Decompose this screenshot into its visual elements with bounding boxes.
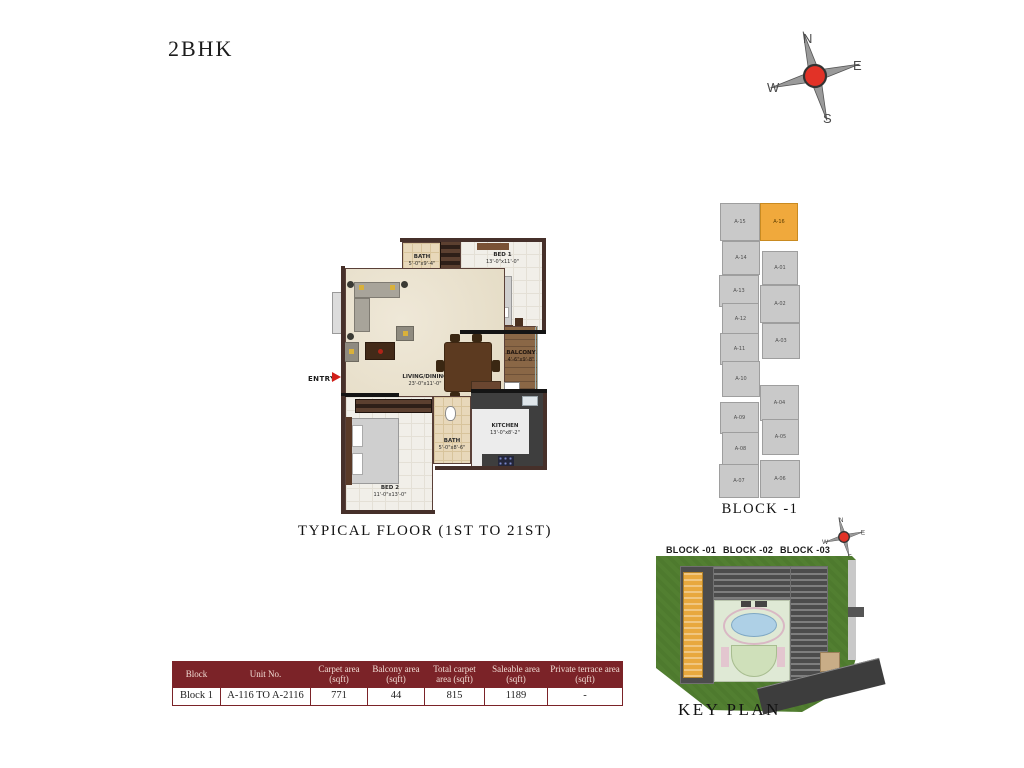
table-row: Block 1 A-116 TO A-2116 771 44 815 1189 … (173, 687, 623, 705)
unit-a06: A-06 (760, 460, 800, 498)
cell-total-carpet-area: 815 (425, 687, 485, 705)
dining-chair (436, 360, 444, 372)
page-title: 2BHK (168, 36, 233, 62)
col-block: Block (173, 662, 221, 688)
cell-unit-no: A-116 TO A-2116 (221, 687, 311, 705)
table-header-row: Block Unit No. Carpet area (sqft) Balcon… (173, 662, 623, 688)
col-carpet-area: Carpet area (sqft) (311, 662, 368, 688)
keyplan-block01-label: BLOCK -01 (666, 546, 716, 555)
courtyard-structure (755, 601, 767, 607)
dining-chair (492, 360, 500, 372)
planter (347, 281, 354, 288)
cell-private-terrace-area: - (548, 687, 623, 705)
unit-a14: A-14 (722, 241, 760, 275)
col-total-carpet-area: Total carpet area (sqft) (425, 662, 485, 688)
dining-chair (450, 334, 460, 342)
area-table: Block Unit No. Carpet area (sqft) Balcon… (172, 661, 623, 706)
accent-chair (344, 342, 359, 362)
balcony-label: BALCONY 4'-6"x9'-8" (504, 350, 538, 363)
site-annex (848, 607, 864, 617)
unit-a07: A-07 (719, 464, 759, 498)
brochure-page: 2BHK N E W S 2 NOS ︿︿︿ BATH 5'-0"x9'-4" (0, 0, 1024, 768)
wall (543, 393, 547, 470)
cell-block: Block 1 (173, 687, 221, 705)
nightstand-right (515, 318, 523, 326)
block1-tower: A-15 A-14 A-13 A-12 A-11 A-10 A-09 A-08 … (714, 198, 806, 502)
col-saleable-area: Saleable area (sqft) (485, 662, 548, 688)
wall (341, 396, 345, 514)
sofa-chaise (354, 298, 370, 332)
wall (341, 266, 345, 396)
bed1-console (477, 243, 509, 250)
compass-n: N (803, 31, 812, 46)
keyplan-caption: KEY PLAN (678, 700, 781, 720)
unit-a09: A-09 (720, 402, 759, 434)
unit-a05: A-05 (762, 419, 799, 455)
svg-text:E: E (861, 529, 866, 536)
bed2 (349, 418, 399, 484)
wall (341, 393, 399, 397)
cell-balcony-area: 44 (368, 687, 425, 705)
bed1-label: BED 1 13'-0"x11'-0" (460, 252, 545, 265)
unit-a12: A-12 (722, 303, 759, 335)
dining-chair (472, 334, 482, 342)
compass-w: W (767, 80, 780, 95)
planter (401, 281, 408, 288)
keyplan-block02-label: BLOCK -02 (723, 546, 773, 555)
unit-a15: A-15 (720, 203, 760, 241)
unit-a01: A-01 (762, 251, 798, 285)
cell-carpet-area: 771 (311, 687, 368, 705)
compass-e: E (853, 58, 862, 73)
key-plan: N E W S BLOCK -01 BLOCK -02 BLOCK -03 (652, 540, 874, 740)
sofa (354, 282, 400, 298)
entry-arrow-icon (332, 372, 341, 382)
accent-chair (396, 326, 414, 341)
bed2-label: BED 2 11'-0"x13'-0" (355, 485, 425, 498)
compass-icon: N E W S (765, 26, 865, 126)
floor-caption: TYPICAL FLOOR (1ST TO 21ST) (290, 523, 560, 540)
toilet-icon (445, 406, 456, 421)
garden-path (721, 647, 729, 667)
wall (341, 510, 435, 514)
bath2-label: BATH 5'-0"x8'-6" (433, 438, 471, 451)
col-private-terrace-area: Private terrace area (sqft) (548, 662, 623, 688)
compass-s: S (823, 111, 832, 126)
kitchen-label: KITCHEN 13'-0"x8'-2" (476, 423, 534, 436)
compass-rose: N E W S (765, 26, 865, 126)
wall (471, 389, 547, 393)
unit-a16-highlighted: A-16 (760, 203, 798, 241)
sink-icon (522, 396, 538, 406)
floor-plan: 2 NOS ︿︿︿ BATH 5'-0"x9'-4" BED 1 13'-0"x… (332, 238, 556, 516)
pool (731, 613, 777, 637)
unit-a08: A-08 (722, 432, 759, 466)
coffee-table (365, 342, 395, 360)
unit-a03: A-03 (762, 323, 800, 359)
unit-a10: A-10 (722, 361, 760, 397)
planter (347, 333, 354, 340)
wall (435, 466, 547, 470)
col-unit-no: Unit No. (221, 662, 311, 688)
unit-a02: A-02 (760, 285, 800, 323)
garden-path (777, 647, 785, 667)
wardrobe-bed2 (355, 399, 432, 413)
wall (542, 238, 546, 332)
courtyard (714, 600, 790, 682)
svg-text:N: N (839, 517, 844, 524)
bath1-label: BATH 5'-0"x9'-4" (402, 254, 442, 267)
wall (400, 238, 546, 242)
keyplan-block03-label: BLOCK -03 (780, 546, 830, 555)
amphitheater (731, 645, 777, 677)
cell-saleable-area: 1189 (485, 687, 548, 705)
courtyard-structure (741, 601, 751, 607)
block1-caption: BLOCK -1 (712, 501, 808, 518)
unit-a04: A-04 (760, 385, 799, 421)
col-balcony-area: Balcony area (sqft) (368, 662, 425, 688)
wall (460, 330, 546, 334)
block1-highlight (683, 572, 703, 678)
